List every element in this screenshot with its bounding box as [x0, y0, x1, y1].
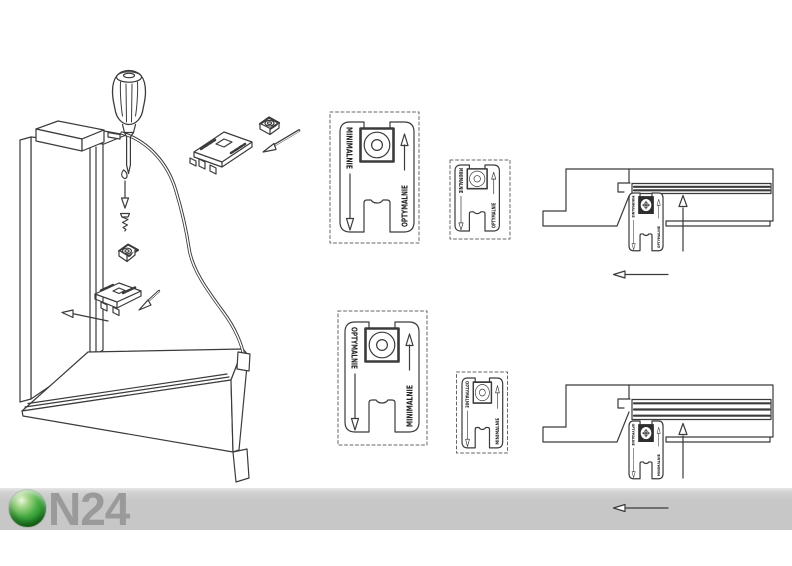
label-right: OPTYMALNIE — [492, 203, 498, 228]
detail-panel-step1-clip: MINIMALNIE OPTYMALNIE — [340, 122, 414, 232]
label-right: MINIMALNIE — [495, 418, 501, 445]
cable-end-bracket — [237, 352, 250, 371]
label-left: MINIMALNIE — [345, 127, 354, 169]
square-nut — [119, 245, 138, 262]
screw-drop-sequence — [119, 170, 138, 262]
gasket-cable — [122, 133, 250, 371]
label-right: MINIMALNIE — [406, 385, 415, 427]
on24-logo: N24 — [9, 487, 129, 529]
logo-text: N24 — [48, 489, 129, 529]
diagram-svg: MINIMALNIE OPTYMALNIE MINIMALNIE OPTYMA — [0, 0, 792, 566]
detail-panel-step2-small-clip: OPTYMALNIE MINIMALNIE — [462, 378, 503, 448]
section-clip: OPTYMALNIE MINIMALNIE — [629, 421, 663, 479]
screwdriver — [113, 71, 146, 174]
clip-insert-arrow — [139, 291, 159, 310]
cross-section-top: MINIMALNIE OPTYMALNIE — [543, 169, 773, 278]
clip-exploded — [190, 132, 252, 174]
label-right: MINIMALNIE — [656, 454, 661, 476]
detail-panel-step2-clip: OPTYMALNIE MINIMALNIE — [345, 322, 419, 432]
label-left: OPTYMALNIE — [350, 327, 359, 369]
iso-assembly-view — [20, 71, 299, 483]
cross-section-bottom: OPTYMALNIE MINIMALNIE — [543, 385, 773, 512]
instruction-sheet: MINIMALNIE OPTYMALNIE MINIMALNIE OPTYMA — [0, 0, 792, 566]
label-left: OPTYMALNIE — [631, 424, 636, 446]
label-right: OPTYMALNIE — [401, 185, 410, 227]
section-clip: MINIMALNIE OPTYMALNIE — [629, 193, 663, 251]
label-left: MINIMALNIE — [457, 168, 463, 193]
glazing-unit — [632, 184, 771, 194]
label-left: MINIMALNIE — [631, 196, 636, 218]
logo-sphere-icon — [9, 490, 46, 527]
detail-panel-step1-small-clip: MINIMALNIE OPTYMALNIE — [455, 165, 499, 231]
nut-exploded — [260, 118, 279, 135]
label-left: OPTYMALNIE — [464, 381, 470, 408]
label-right: OPTYMALNIE — [656, 226, 661, 248]
